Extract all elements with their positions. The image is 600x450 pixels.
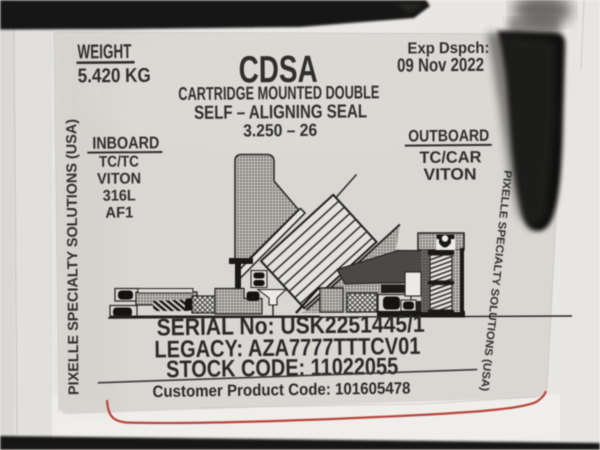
svg-text:INBOARD: INBOARD — [92, 133, 159, 153]
svg-text:OUTBOARD: OUTBOARD — [408, 127, 489, 146]
svg-text:VITON: VITON — [423, 165, 476, 183]
svg-text:TC/TC: TC/TC — [99, 153, 139, 170]
svg-text:3.250 – 26: 3.250 – 26 — [243, 120, 317, 141]
svg-text:TC/CAR: TC/CAR — [419, 148, 481, 167]
svg-text:5.420 KG: 5.420 KG — [78, 65, 151, 88]
svg-text:WEIGHT: WEIGHT — [77, 41, 131, 63]
svg-text:Customer Product Code: 1016054: Customer Product Code: 101605478 — [152, 379, 410, 401]
svg-text:316L: 316L — [103, 187, 136, 204]
svg-text:PIXELLE SPECIALTY SOLUTIONS (U: PIXELLE SPECIALTY SOLUTIONS (USA) — [64, 119, 82, 395]
svg-text:AF1: AF1 — [105, 204, 133, 221]
svg-text:VITON: VITON — [97, 170, 141, 187]
svg-text:09 Nov 2022: 09 Nov 2022 — [397, 55, 484, 77]
